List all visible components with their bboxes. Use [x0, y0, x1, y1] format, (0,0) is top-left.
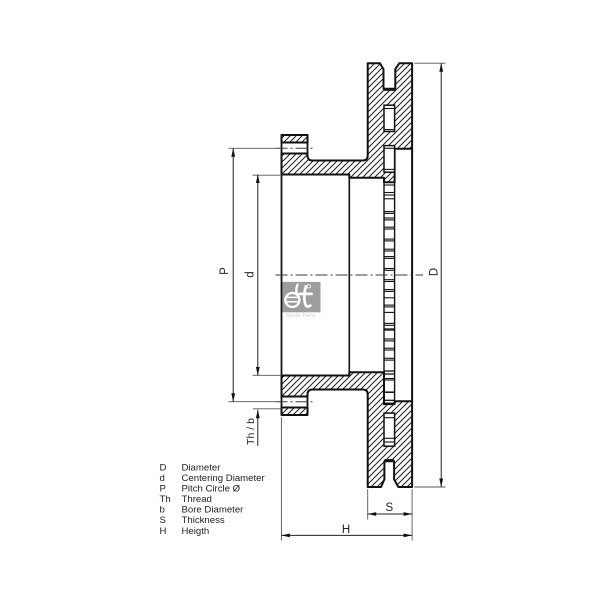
svg-text:D: D [429, 268, 441, 276]
svg-text:Diameter: Diameter [182, 462, 222, 473]
svg-text:P: P [160, 484, 166, 495]
svg-text:Th / b: Th / b [245, 418, 257, 445]
svg-text:Centering Diameter: Centering Diameter [182, 473, 266, 484]
svg-text:d: d [244, 271, 256, 277]
svg-text:Pitch Circle Ø: Pitch Circle Ø [182, 484, 241, 495]
svg-text:Thickness: Thickness [182, 515, 225, 526]
svg-text:S: S [385, 502, 393, 514]
svg-text:Bore Diameter: Bore Diameter [182, 505, 245, 516]
svg-text:H: H [342, 524, 350, 536]
svg-text:D: D [160, 462, 167, 473]
svg-text:b: b [160, 505, 165, 516]
svg-text:P: P [219, 267, 231, 275]
svg-text:d: d [160, 473, 165, 484]
svg-text:S: S [160, 515, 166, 526]
svg-text:Th: Th [160, 494, 171, 505]
svg-text:H: H [160, 526, 167, 537]
svg-text:Spare Parts: Spare Parts [286, 313, 316, 319]
svg-text:Heigth: Heigth [182, 526, 210, 537]
svg-text:Thread: Thread [182, 494, 212, 505]
